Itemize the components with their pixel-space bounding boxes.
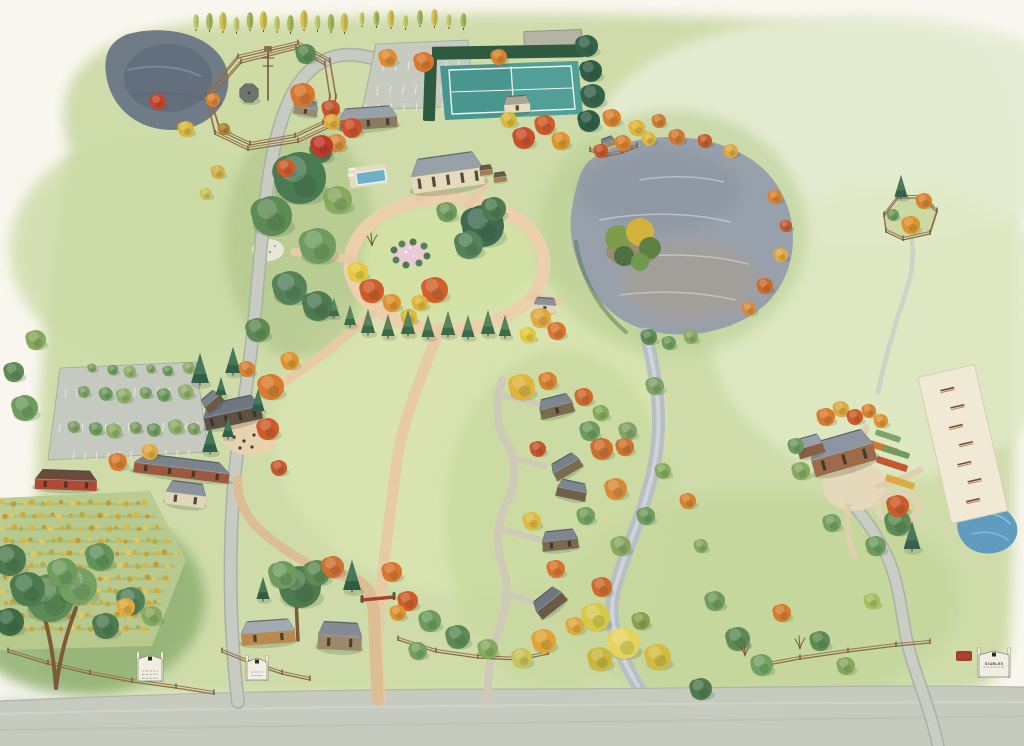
stone-wall — [524, 29, 582, 46]
upper-pond-depth — [124, 44, 212, 112]
bed-shrub — [393, 257, 400, 264]
red-farm-stand — [31, 469, 100, 495]
gate-post — [361, 595, 364, 603]
map-canvas: STABLES — [0, 0, 1024, 746]
island-tree — [614, 246, 634, 266]
patio-table — [250, 445, 253, 448]
scene-root: STABLES — [0, 0, 1024, 746]
bed-shrub — [416, 260, 423, 267]
bed-shrub — [399, 241, 406, 248]
bed-shrub — [391, 247, 398, 254]
patio-table — [242, 439, 245, 442]
flower — [405, 251, 407, 253]
stables-sign-label: STABLES — [985, 662, 1004, 666]
flower — [409, 247, 411, 249]
gate-post — [393, 592, 396, 600]
patio-table — [238, 446, 241, 449]
pond-deep — [580, 150, 740, 230]
rock — [269, 251, 271, 253]
flower — [412, 255, 414, 257]
bed-shrub — [403, 262, 410, 269]
red-gate — [957, 652, 972, 661]
patio-table — [252, 433, 255, 436]
bed-shrub — [421, 243, 428, 250]
watercolor-property-map: STABLES — [0, 0, 1024, 746]
tennis-hedge-top — [432, 44, 584, 60]
gatehouse — [315, 621, 365, 656]
rock — [274, 245, 276, 247]
bed-shrub — [424, 253, 431, 260]
martin-house — [264, 46, 272, 52]
bed-shrub — [410, 239, 417, 246]
island-tree — [631, 253, 649, 271]
